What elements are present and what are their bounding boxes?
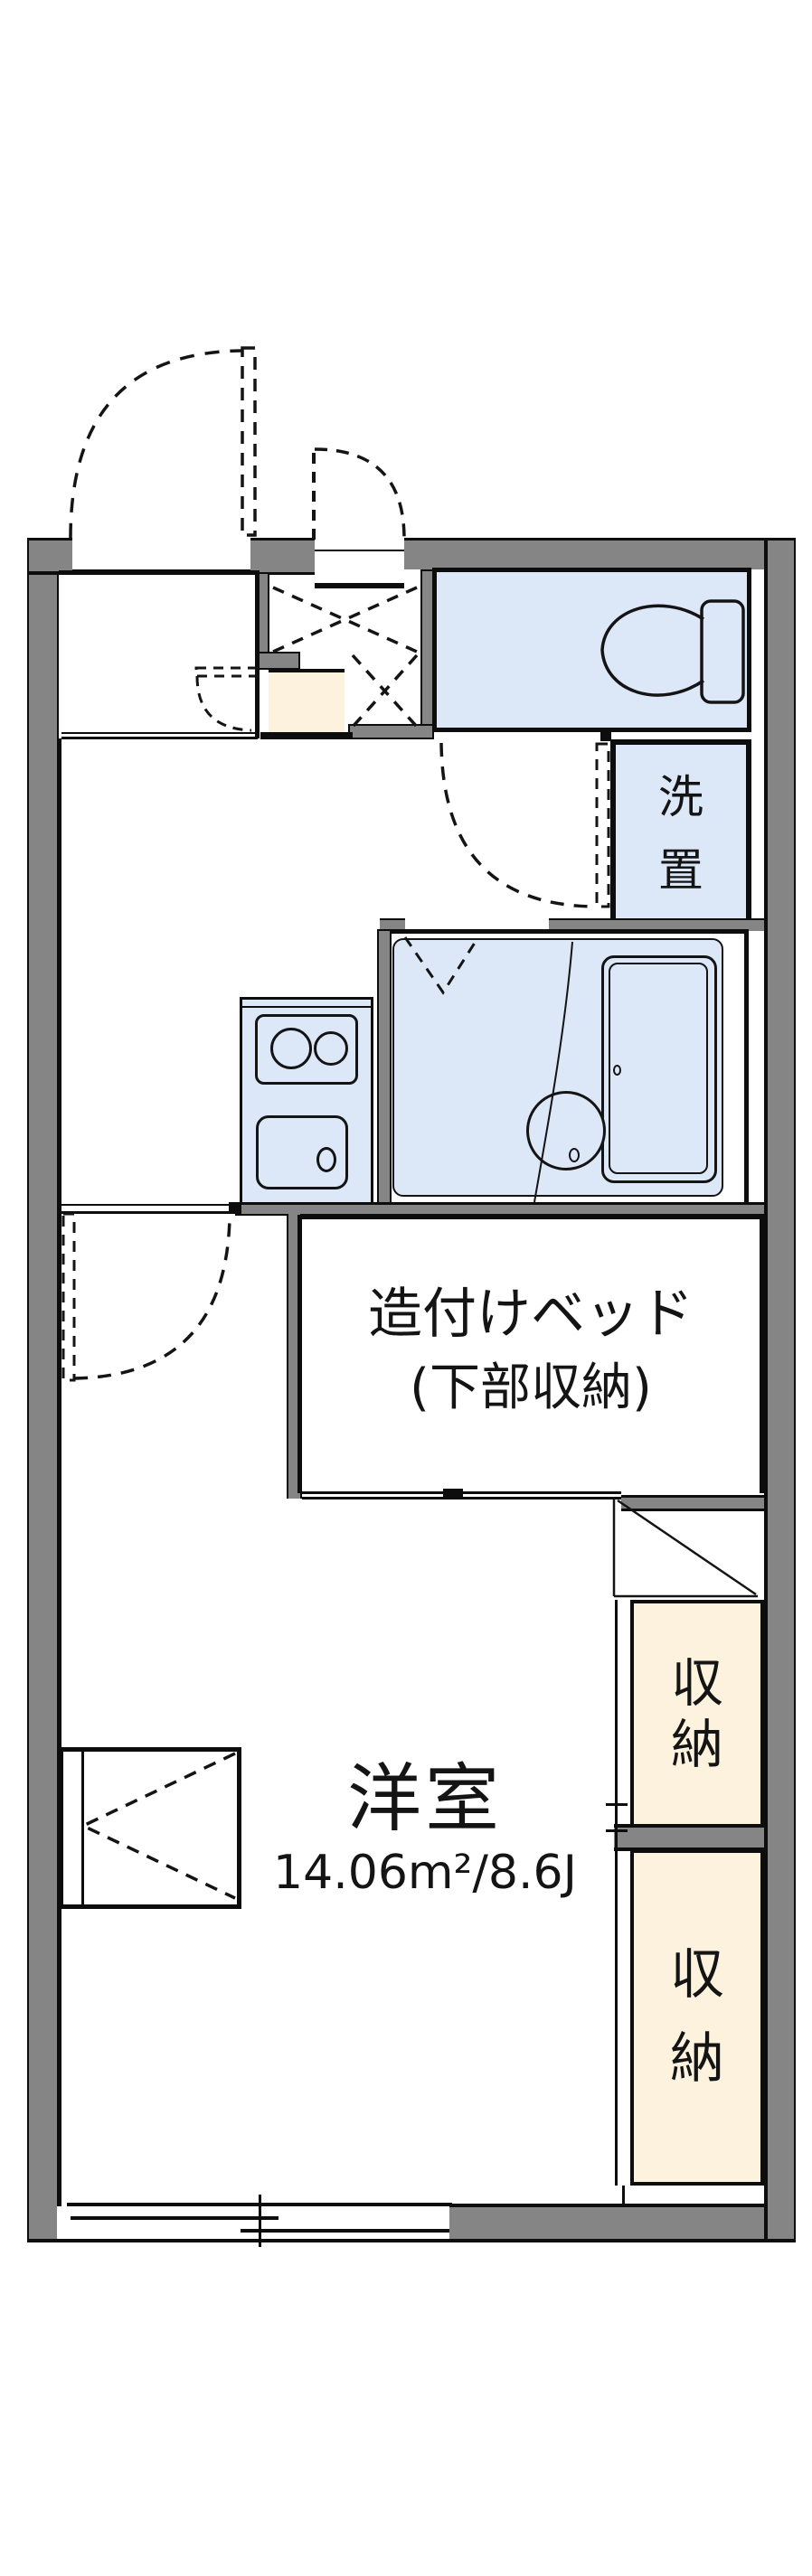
genkan-step-platform (269, 669, 345, 734)
wall-bed-bottom-stub (621, 1495, 764, 1511)
entrance-opening (72, 541, 250, 569)
storage-track-tick-2 (606, 1829, 628, 1832)
entry-side-room (59, 570, 260, 738)
room-door-swing (63, 1214, 230, 1380)
bed-label-line2: (下部収納) (410, 1360, 652, 1416)
built-in-bed: 造付けベッド (下部収納) (297, 1215, 764, 1493)
wall-kitchen-bath (377, 929, 392, 1206)
stove-icon (255, 1014, 358, 1085)
toilet-icon (437, 572, 747, 728)
genkan-step-black-edge (260, 732, 353, 739)
entry-side-room-bottom-line-a (61, 732, 258, 734)
wall-top-corner-block (29, 538, 72, 575)
kitchen-counter (240, 997, 373, 1205)
corner-triangle (614, 1499, 758, 1596)
wall-storage-divider (614, 1824, 764, 1851)
sink-drain (316, 1147, 336, 1172)
entry-recess-line (315, 550, 404, 551)
room-area-label: 14.06m²/8.6J (226, 1846, 624, 1902)
wall-top-right (404, 538, 764, 569)
room-window-box-line (81, 1752, 84, 1904)
entrance-door-swing (71, 348, 255, 538)
laundry-space: 洗 置 (610, 739, 751, 928)
storage-track-tick-1 (606, 1803, 628, 1806)
bathroom (384, 929, 749, 1208)
room-name-label: 洋室 (298, 1757, 552, 1842)
bed-bottom-stop (443, 1489, 463, 1499)
floor-plan: 洗 置 造付けベッド (下部収納) (0, 0, 812, 2576)
bottom-outer-line (29, 2239, 796, 2242)
room-window-box (59, 1747, 241, 1909)
bed-label-line1: 造付けベッド (368, 1284, 694, 1344)
wall-left-inner-line (57, 570, 61, 2206)
wall-mid (235, 1202, 764, 1216)
wall-genkan-step (255, 652, 300, 670)
entry-recess (315, 541, 404, 584)
wall-bottom (449, 2204, 764, 2242)
entry-second-door-swing (314, 449, 404, 540)
kitchen-counter-edge (242, 1006, 371, 1008)
stove-burner-large (270, 1028, 312, 1069)
hall-room-door-stop (229, 1202, 241, 1214)
washroom-door-swing (441, 743, 609, 907)
storage-upper: 収 納 (630, 1600, 764, 1828)
hall-room-line-b (61, 1211, 235, 1214)
bath-stool-icon (526, 1091, 606, 1170)
wall-genkan-bottom (348, 724, 434, 739)
wall-left-outer-line (27, 538, 29, 2242)
bath-drain-dot (569, 1148, 580, 1162)
stove-burner-small (314, 1031, 348, 1066)
storage-lower-label: 収 納 (670, 1933, 724, 2101)
toilet-room (432, 568, 751, 732)
wall-left (29, 540, 57, 2242)
wall-right (764, 538, 796, 2242)
hall-room-line-a (61, 1204, 235, 1206)
bathtub-icon (601, 955, 717, 1183)
bathtub-inner-line (609, 963, 708, 1174)
sink-icon (256, 1115, 348, 1189)
storage-upper-label: 収 納 (671, 1652, 723, 1776)
laundry-label: 洗 置 (658, 761, 703, 907)
storage-lower: 収 納 (630, 1849, 764, 2186)
wall-top-mid (250, 538, 315, 575)
balcony-window-pane-left (71, 2216, 279, 2220)
entry-side-room-bottom-line-b (61, 737, 258, 739)
bathtub-handle-dot (613, 1065, 621, 1076)
balcony-window-pane-right (241, 2229, 449, 2233)
entry-step-edge (315, 583, 404, 588)
